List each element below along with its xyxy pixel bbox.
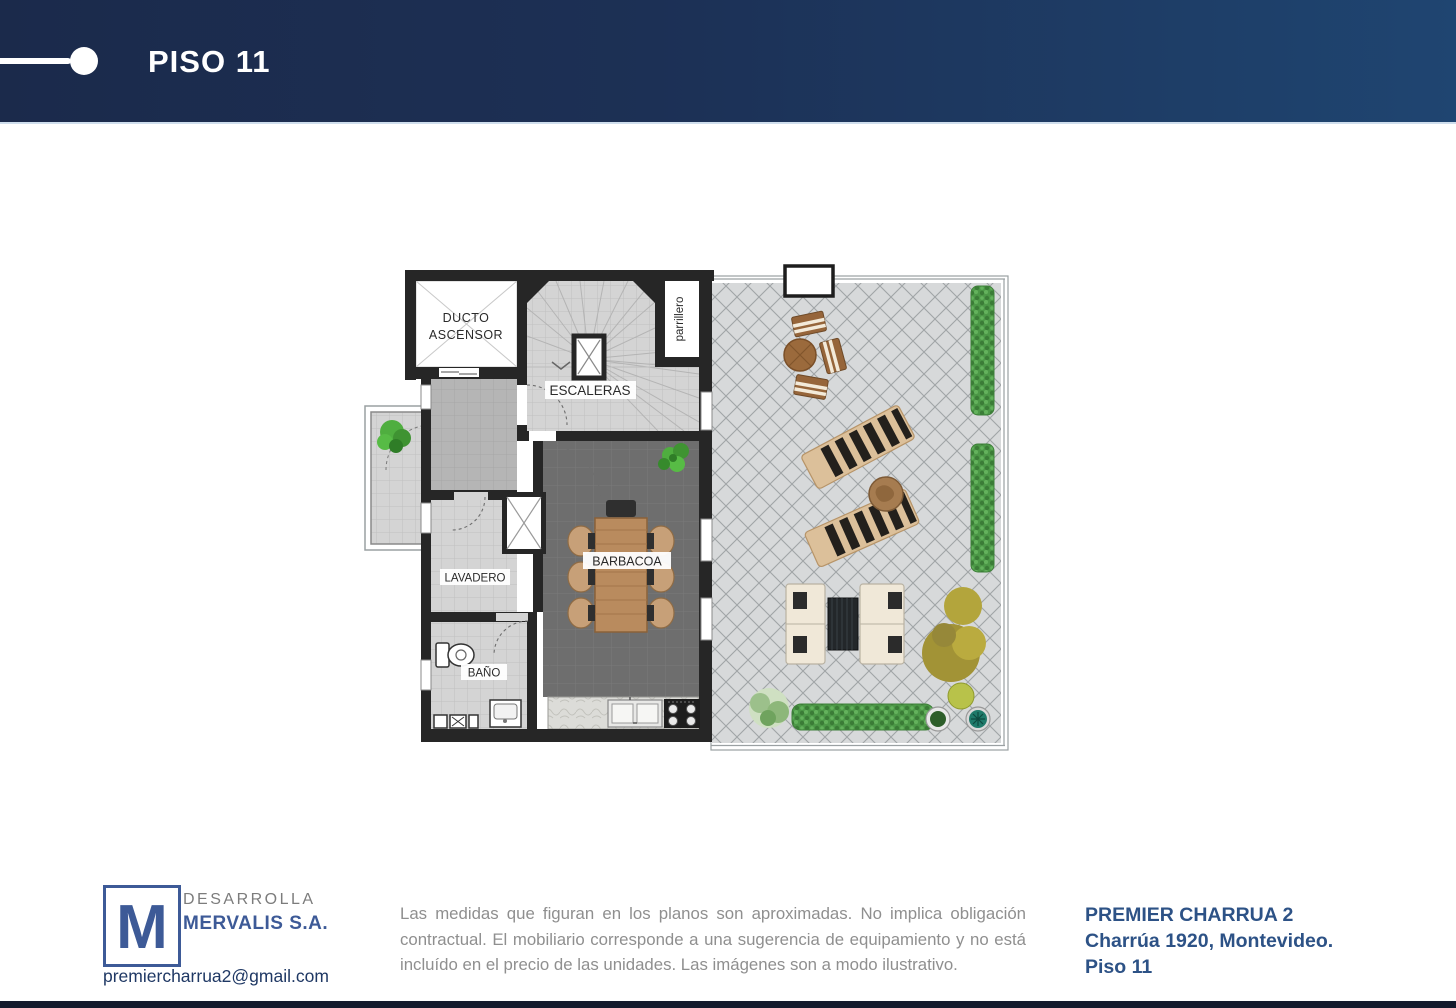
header-accent-dot: [70, 47, 98, 75]
project-address: Charrúa 1920, Montevideo.: [1085, 928, 1333, 954]
mervalis-logo: M: [103, 885, 181, 967]
label-parrillero: parrillero: [674, 297, 686, 342]
side-table-icon: [869, 477, 903, 511]
label-barbacoa: BARBACOA: [592, 555, 662, 569]
label-ducto-line1: DUCTO: [443, 311, 490, 325]
project-floor: Piso 11: [1085, 954, 1333, 980]
logo-m-letter: M: [116, 897, 168, 959]
label-ducto-line2: ASCENSOR: [429, 328, 503, 342]
bathroom-sink-icon: [490, 700, 521, 727]
disclaimer-text: Las medidas que figuran en los planos so…: [400, 901, 1026, 978]
room-hall-floor: [431, 378, 517, 490]
company-mervalis: MERVALIS S.A.: [183, 913, 328, 935]
header-underline: [0, 122, 1456, 124]
project-name: PREMIER CHARRUA 2: [1085, 902, 1333, 928]
stair-newel: [574, 336, 604, 378]
bottom-edge-bar: [0, 1001, 1456, 1008]
floor-plan: DUCTO ASCENSOR ESCALERAS parrillero LAVA…: [355, 255, 1015, 765]
contact-email[interactable]: premiercharrua2@gmail.com: [103, 966, 329, 987]
laundry-appliances: [434, 715, 478, 728]
grill-icon: [785, 266, 833, 296]
kitchen-sink-icon: [608, 697, 662, 727]
project-info: PREMIER CHARRUA 2 Charrúa 1920, Montevid…: [1085, 902, 1333, 980]
label-bano: BAÑO: [468, 667, 501, 680]
header-accent-line: [0, 58, 71, 64]
label-escaleras: ESCALERAS: [549, 383, 630, 398]
toilet-icon: [436, 643, 474, 667]
label-lavadero: LAVADERO: [445, 573, 506, 585]
stove-icon: [664, 699, 700, 728]
page-title: PISO 11: [148, 44, 270, 80]
company-desarrolla: DESARROLLA: [183, 891, 316, 909]
